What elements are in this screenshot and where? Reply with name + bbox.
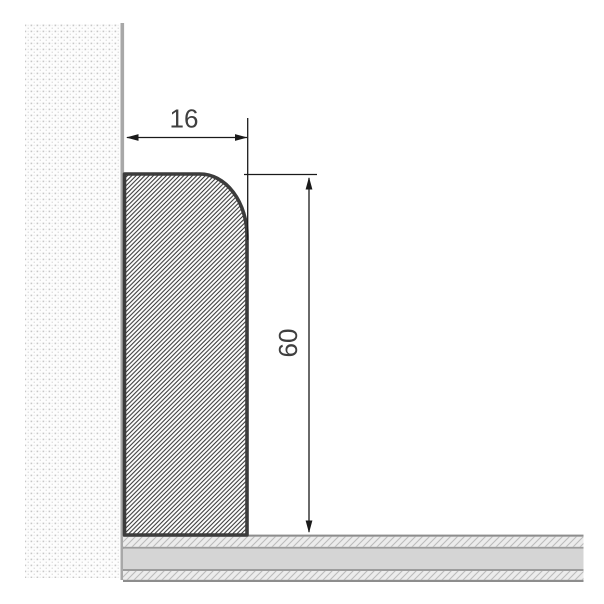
height-arrow-top	[306, 177, 313, 190]
height-arrow-bottom	[306, 521, 313, 534]
floor-hatch-strip-top	[123, 537, 584, 547]
width-dimension-label: 16	[170, 104, 199, 134]
floor-divider-lower	[123, 569, 584, 571]
height-dimension-label: 60	[273, 329, 303, 358]
floor-bottom-border	[123, 580, 584, 582]
wall-stipple-area	[25, 24, 121, 578]
width-arrow-right	[235, 134, 248, 141]
floor-plain-strip	[123, 549, 584, 569]
floor-hatch-strip-bottom	[123, 571, 584, 580]
floor-divider-upper	[123, 547, 584, 549]
width-arrow-left	[126, 134, 139, 141]
floor-section	[123, 535, 584, 582]
skirting-board-profile	[125, 174, 248, 535]
skirting-board-cross-section-diagram: 16 60	[0, 0, 604, 604]
diagram-svg: 16 60	[0, 0, 604, 604]
wall-section	[25, 23, 124, 580]
